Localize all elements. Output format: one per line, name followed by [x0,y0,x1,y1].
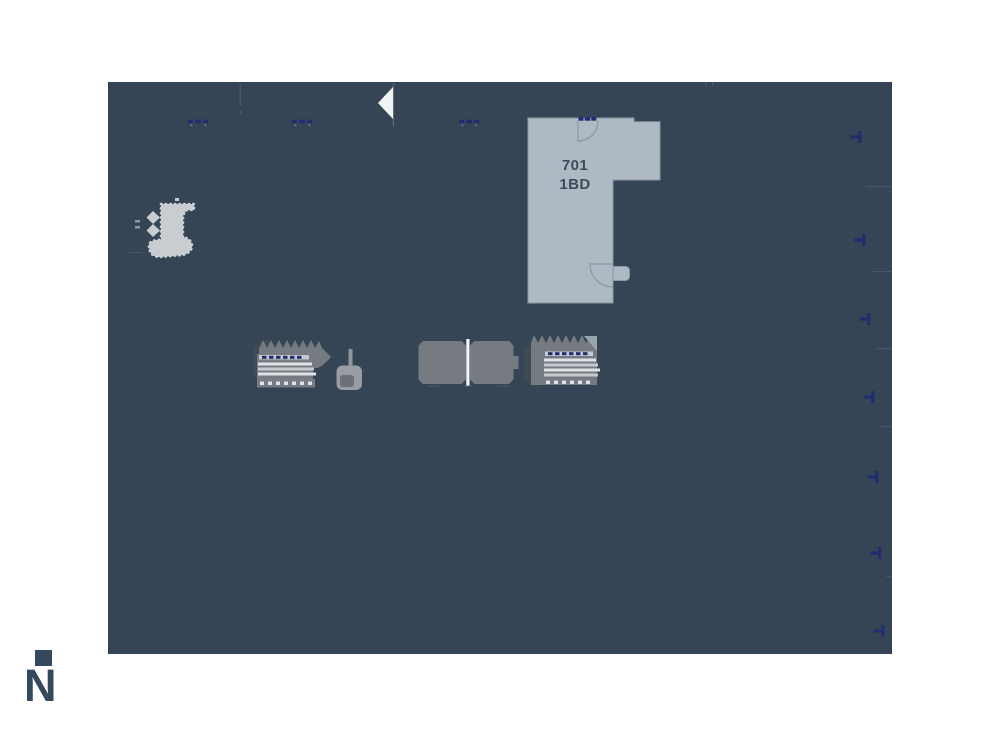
stair-right [524,335,600,389]
floor-plan [0,0,1000,737]
elevator-bank [419,339,519,387]
elevator-cab-right [470,341,514,384]
compass-north-label: N [24,663,56,708]
elevator-divider [466,339,469,386]
elevator-cab-left [419,341,467,384]
